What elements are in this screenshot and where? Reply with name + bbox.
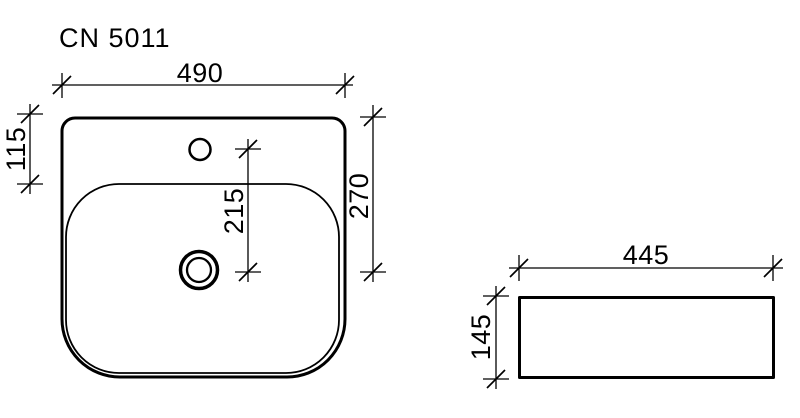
dimension-side-height: 145 xyxy=(466,286,509,389)
dimension-label: 490 xyxy=(177,58,224,88)
faucet-hole xyxy=(190,139,211,160)
basin-outer-outline xyxy=(62,118,345,377)
dimension-label: 215 xyxy=(219,188,249,235)
drain-hole-inner xyxy=(187,258,211,282)
dimension-label: 115 xyxy=(1,127,31,172)
dimension-rim-to-bowl: 115 xyxy=(1,104,43,194)
basin-top-view xyxy=(62,118,345,377)
model-title: CN 5011 xyxy=(59,23,171,53)
dimension-side-width: 445 xyxy=(509,240,783,281)
dimension-overall-width: 490 xyxy=(52,58,354,98)
side-view-outline xyxy=(520,298,774,378)
dimension-rim-to-drain: 270 xyxy=(344,105,386,282)
basin-bowl-outline xyxy=(66,184,339,373)
basin-side-view xyxy=(520,298,774,378)
drawing-sheet: CN 5011 490 xyxy=(0,0,800,418)
dimension-faucet-to-drain: 215 xyxy=(219,139,261,282)
technical-drawing: CN 5011 490 xyxy=(0,0,800,418)
dimension-label: 270 xyxy=(344,173,374,220)
dimension-label: 145 xyxy=(466,314,496,361)
dimension-label: 445 xyxy=(623,240,670,270)
